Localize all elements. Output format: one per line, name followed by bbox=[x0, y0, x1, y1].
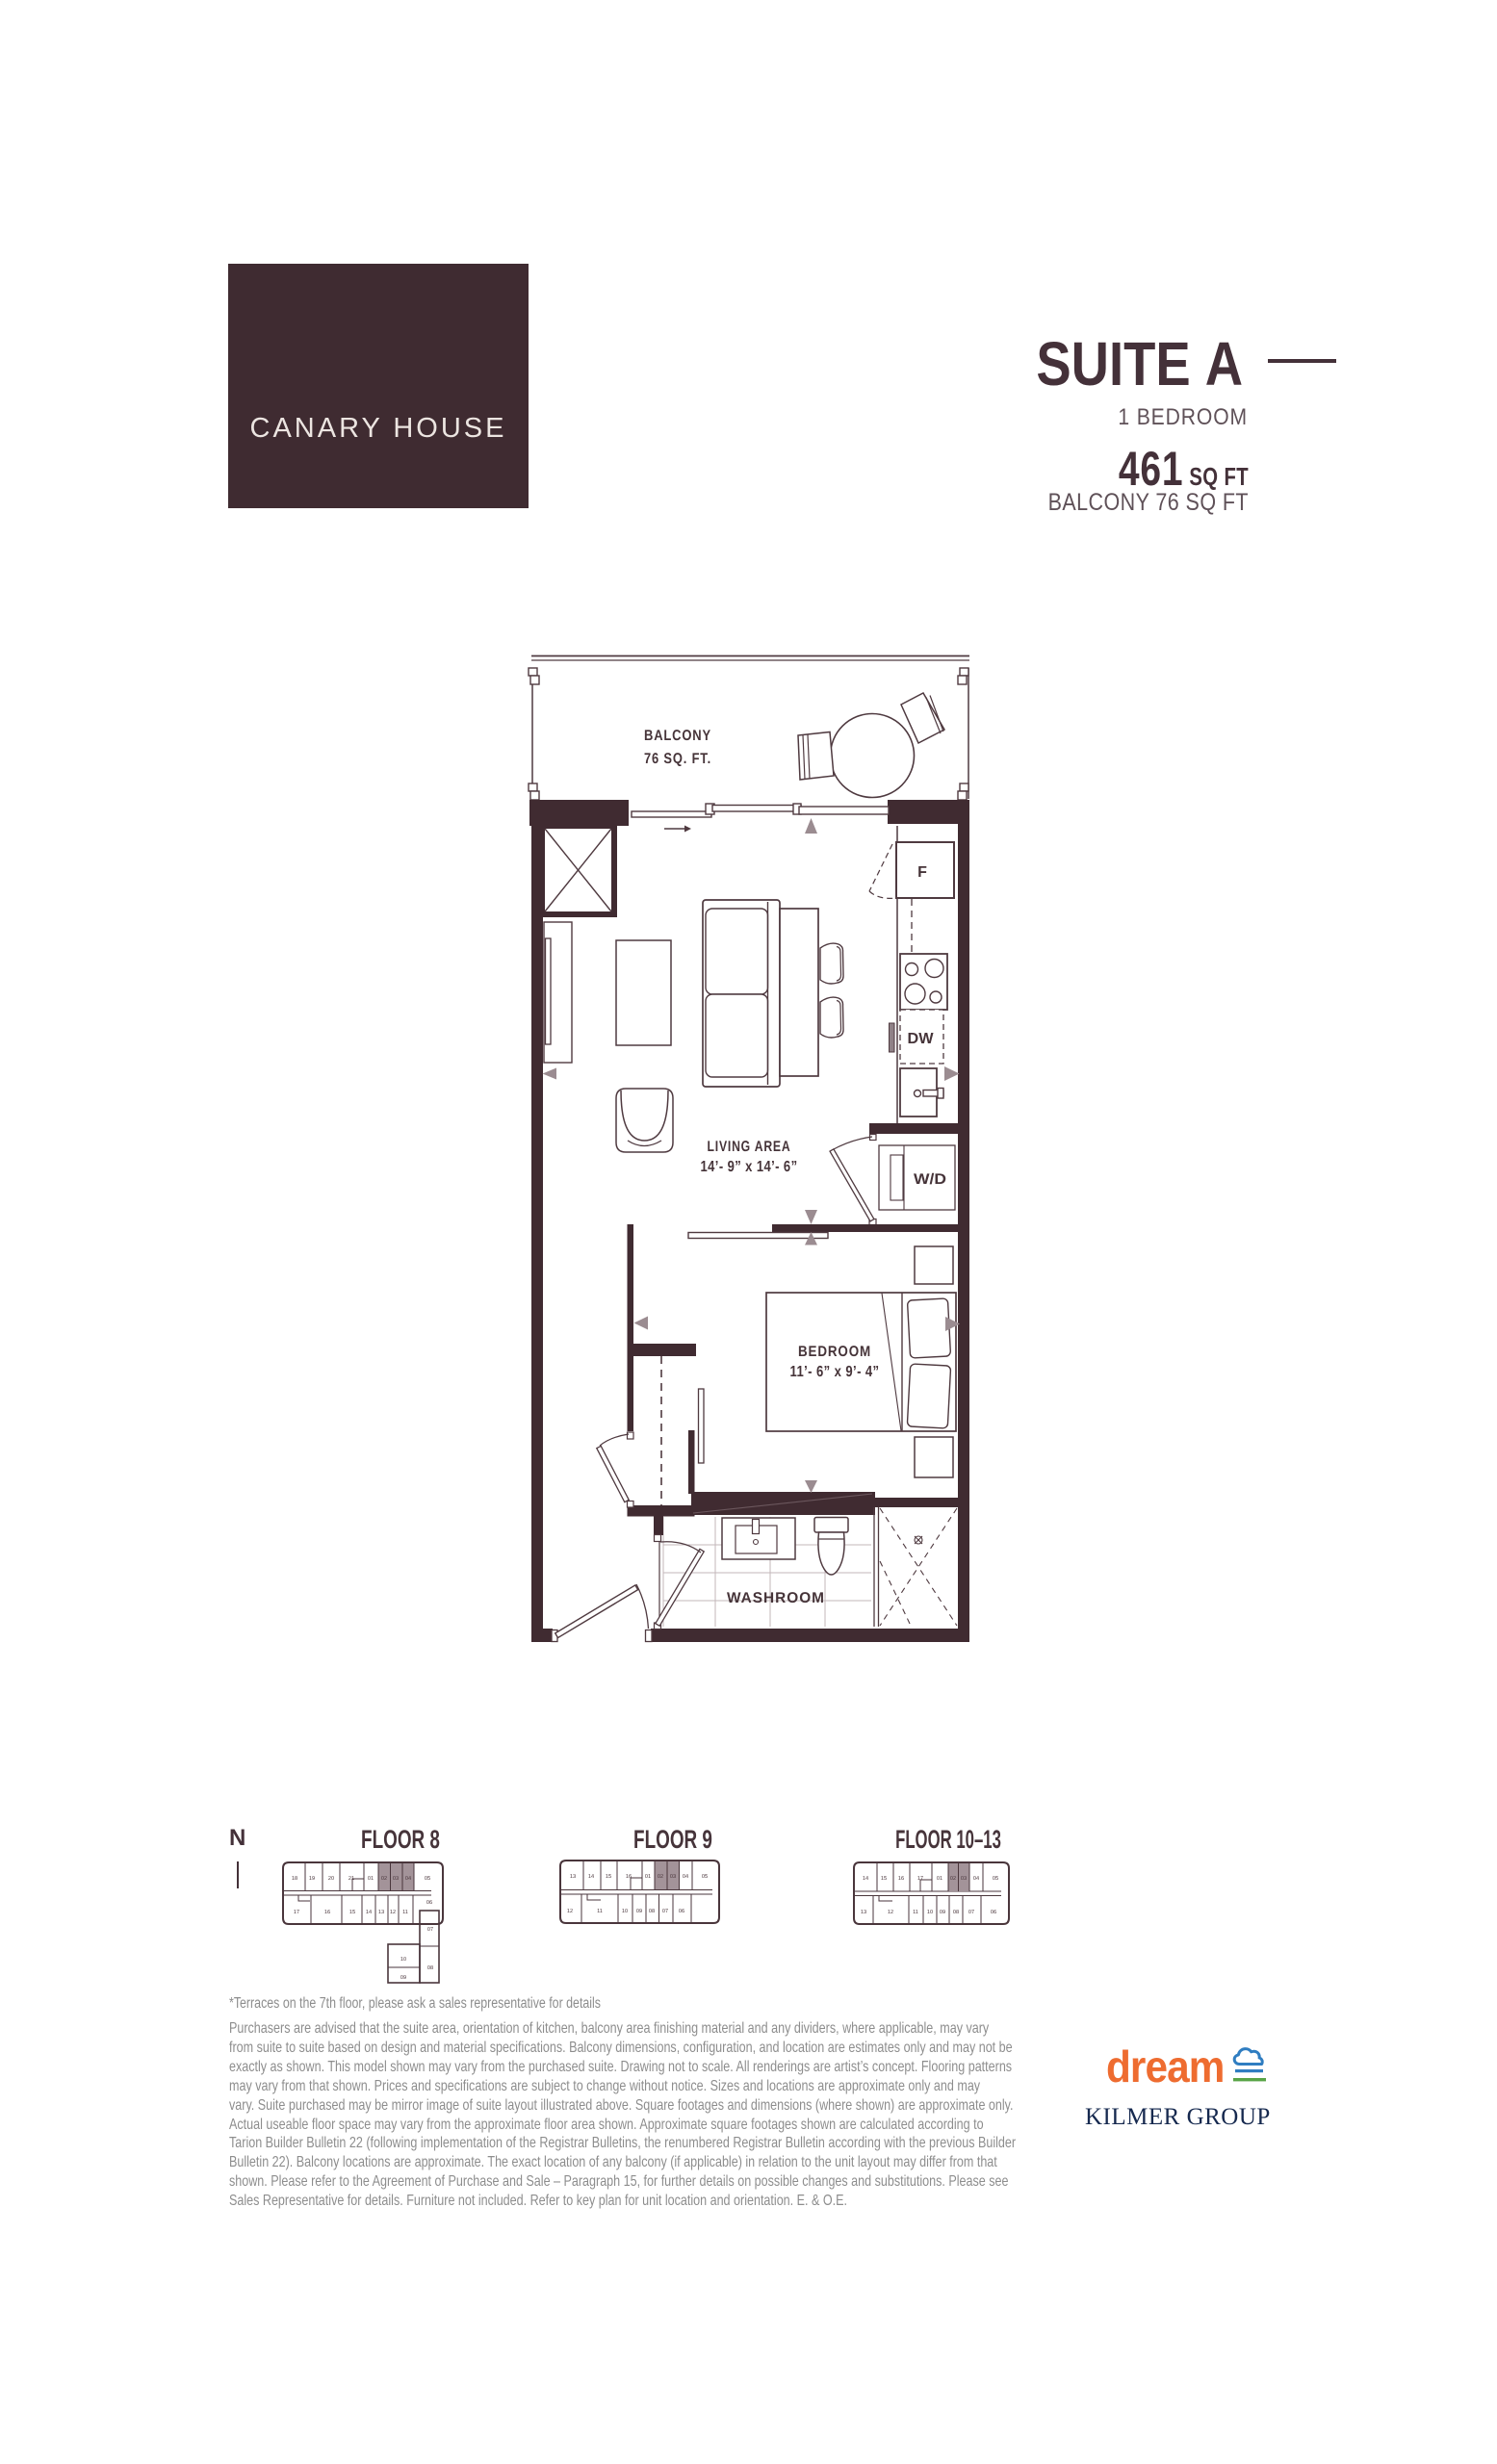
svg-text:11: 11 bbox=[913, 1910, 918, 1915]
svg-text:06: 06 bbox=[679, 1909, 684, 1914]
svg-text:05: 05 bbox=[993, 1876, 998, 1882]
svg-text:08: 08 bbox=[649, 1909, 655, 1914]
svg-text:17: 17 bbox=[294, 1910, 299, 1915]
svg-text:06: 06 bbox=[426, 1900, 432, 1906]
svg-text:03: 03 bbox=[961, 1876, 967, 1882]
svg-text:01: 01 bbox=[368, 1876, 374, 1882]
svg-text:21: 21 bbox=[348, 1876, 354, 1882]
svg-text:09: 09 bbox=[940, 1910, 945, 1915]
svg-text:14: 14 bbox=[588, 1874, 594, 1880]
svg-text:16: 16 bbox=[898, 1876, 904, 1882]
svg-text:12: 12 bbox=[390, 1910, 396, 1915]
svg-text:04: 04 bbox=[973, 1876, 979, 1882]
svg-text:15: 15 bbox=[881, 1876, 887, 1882]
svg-text:14: 14 bbox=[366, 1910, 372, 1915]
svg-text:17: 17 bbox=[917, 1876, 923, 1882]
svg-text:20: 20 bbox=[328, 1876, 334, 1882]
svg-text:11: 11 bbox=[597, 1909, 603, 1914]
svg-text:14: 14 bbox=[863, 1876, 868, 1882]
svg-text:01: 01 bbox=[645, 1874, 651, 1880]
svg-text:12: 12 bbox=[888, 1910, 893, 1915]
svg-text:04: 04 bbox=[683, 1874, 688, 1880]
svg-text:09: 09 bbox=[636, 1909, 642, 1914]
svg-text:07: 07 bbox=[968, 1910, 974, 1915]
svg-text:15: 15 bbox=[606, 1874, 611, 1880]
svg-text:19: 19 bbox=[309, 1876, 315, 1882]
svg-text:03: 03 bbox=[393, 1876, 399, 1882]
svg-text:11: 11 bbox=[402, 1910, 408, 1915]
svg-text:04: 04 bbox=[405, 1876, 411, 1882]
svg-text:16: 16 bbox=[324, 1910, 330, 1915]
svg-text:01: 01 bbox=[937, 1876, 942, 1882]
svg-text:13: 13 bbox=[861, 1910, 866, 1915]
svg-text:08: 08 bbox=[427, 1965, 433, 1971]
svg-text:07: 07 bbox=[662, 1909, 668, 1914]
svg-text:15: 15 bbox=[349, 1910, 355, 1915]
svg-text:06: 06 bbox=[991, 1910, 996, 1915]
svg-text:03: 03 bbox=[670, 1874, 676, 1880]
svg-text:10: 10 bbox=[400, 1957, 406, 1963]
svg-text:09: 09 bbox=[400, 1975, 406, 1981]
svg-text:02: 02 bbox=[658, 1874, 663, 1880]
svg-text:05: 05 bbox=[425, 1876, 430, 1882]
svg-text:02: 02 bbox=[950, 1876, 956, 1882]
svg-text:10: 10 bbox=[622, 1909, 628, 1914]
svg-text:08: 08 bbox=[953, 1910, 959, 1915]
svg-text:16: 16 bbox=[626, 1874, 632, 1880]
svg-text:02: 02 bbox=[381, 1876, 387, 1882]
svg-text:13: 13 bbox=[570, 1874, 576, 1880]
svg-text:13: 13 bbox=[378, 1910, 384, 1915]
svg-text:18: 18 bbox=[292, 1876, 297, 1882]
svg-text:12: 12 bbox=[567, 1909, 573, 1914]
svg-text:07: 07 bbox=[427, 1927, 433, 1933]
svg-text:05: 05 bbox=[702, 1874, 708, 1880]
svg-text:10: 10 bbox=[927, 1910, 933, 1915]
